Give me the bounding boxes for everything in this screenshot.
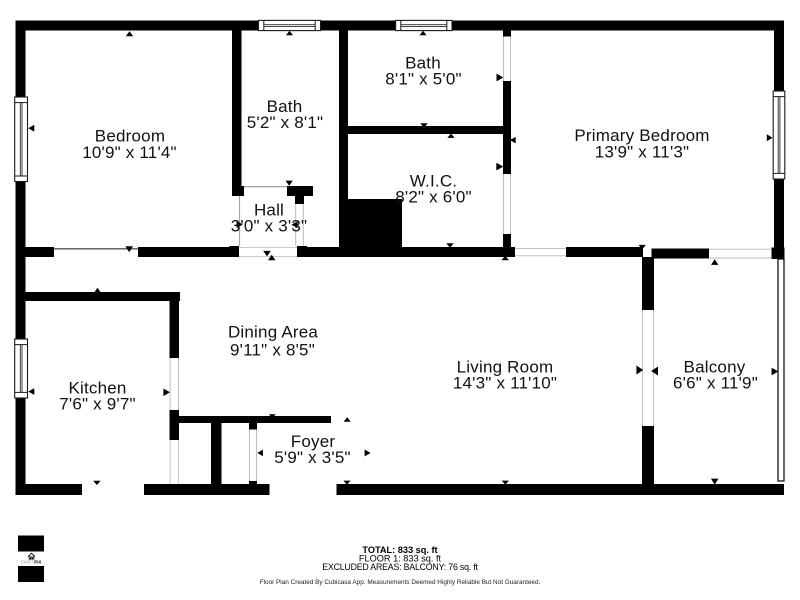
svg-text:7'6" x 9'7": 7'6" x 9'7"	[59, 395, 136, 414]
svg-text:9'11" x 8'5": 9'11" x 8'5"	[230, 341, 315, 360]
svg-text:14'3" x 11'10": 14'3" x 11'10"	[453, 374, 557, 393]
svg-text:Floor Plan Created By Cubicasa: Floor Plan Created By Cubicasa App. Meas…	[260, 579, 541, 586]
svg-text:5'2" x 8'1": 5'2" x 8'1"	[247, 113, 324, 132]
svg-text:EXCLUDED AREAS: BALCONY: 76 sq: EXCLUDED AREAS: BALCONY: 76 sq. ft	[322, 562, 478, 572]
svg-text:13'9" x 11'3": 13'9" x 11'3"	[595, 143, 690, 162]
svg-text:8'2" x 6'0": 8'2" x 6'0"	[395, 188, 472, 207]
svg-text:SWIFTPIX: SWIFTPIX	[21, 560, 42, 565]
svg-text:Dining Area: Dining Area	[228, 323, 318, 342]
svg-text:6'6" x 11'9": 6'6" x 11'9"	[673, 374, 758, 393]
svg-text:10'9" x 11'4": 10'9" x 11'4"	[82, 143, 177, 162]
svg-text:5'9" x 3'5": 5'9" x 3'5"	[274, 448, 351, 467]
svg-text:8'1" x 5'0": 8'1" x 5'0"	[385, 70, 462, 89]
svg-text:3'0" x 3'3": 3'0" x 3'3"	[231, 217, 308, 236]
